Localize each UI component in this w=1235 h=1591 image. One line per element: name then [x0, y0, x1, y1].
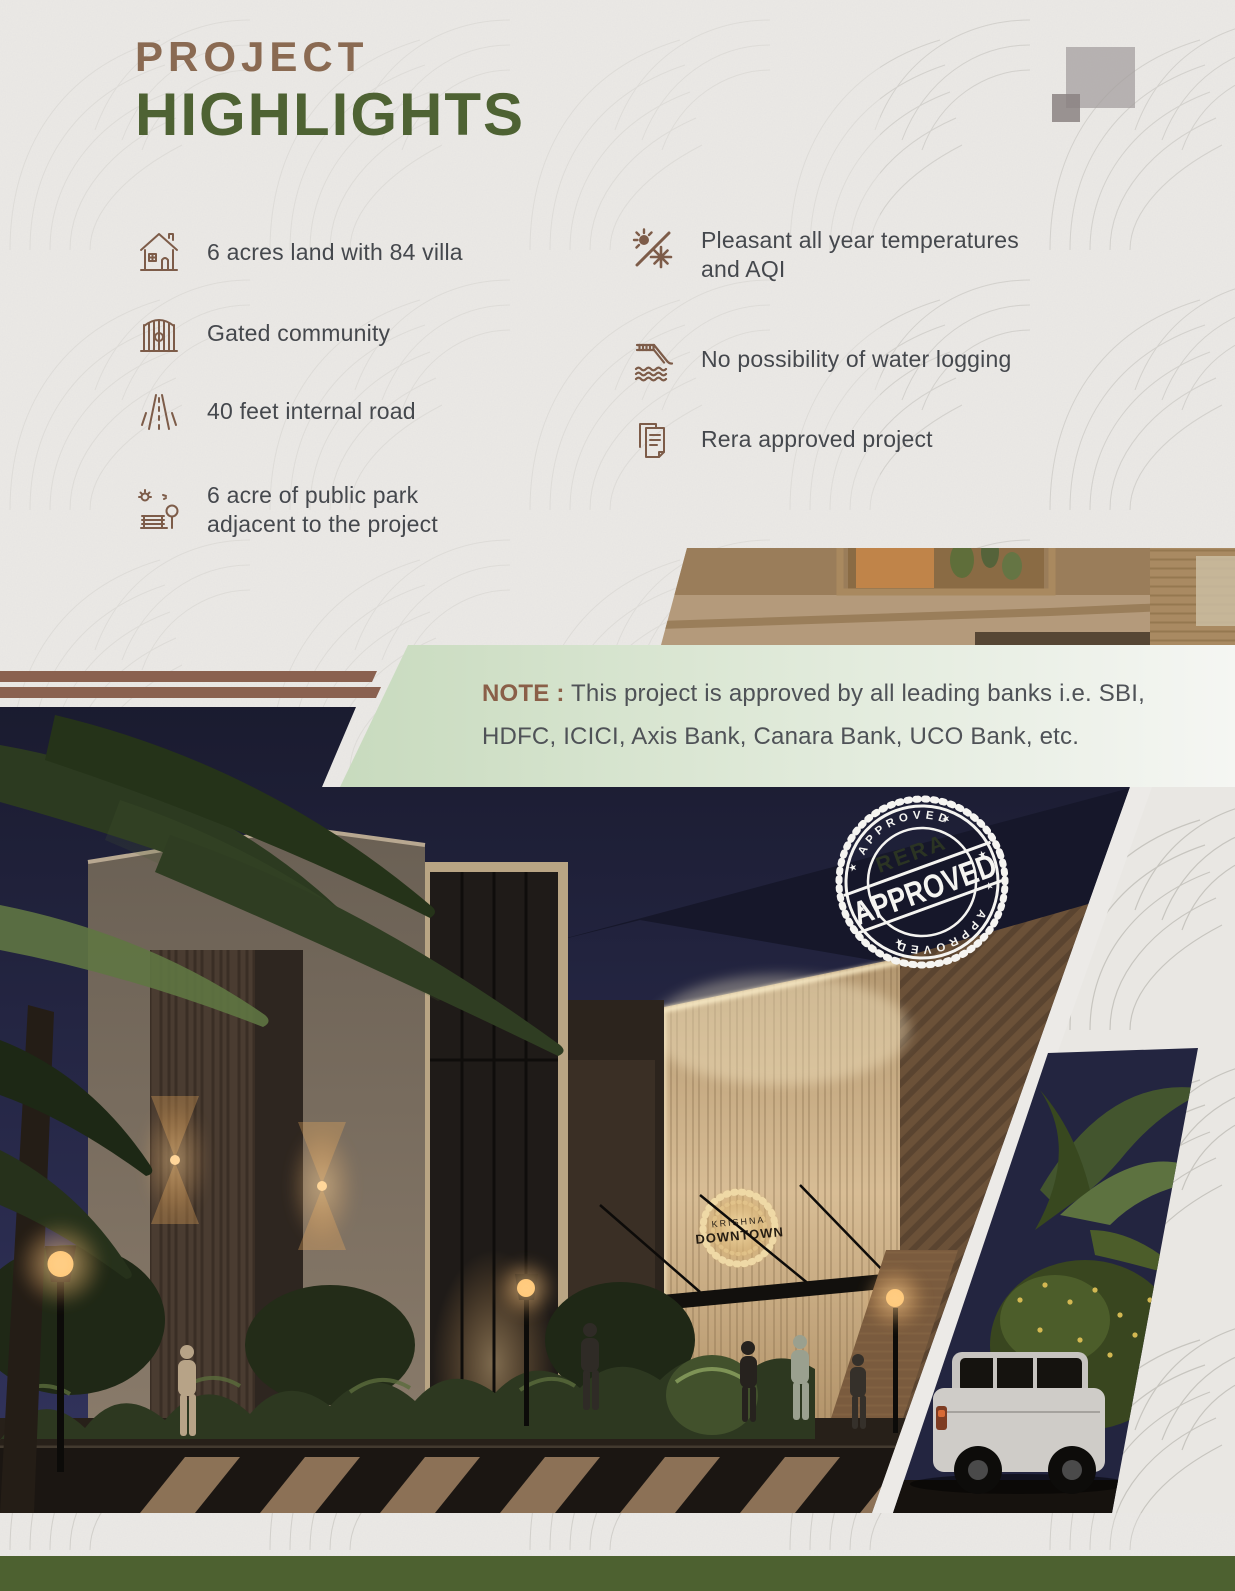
brochure-page: PROJECT HIGHLIGHTS 6 acres land with 84 …	[0, 0, 1235, 1591]
note-label: NOTE :	[482, 680, 565, 707]
footer-bar	[0, 1556, 1235, 1591]
building-photo-top	[650, 536, 1235, 650]
note-line-1: NOTE : This project is approved by all l…	[482, 672, 1235, 715]
note-banner: NOTE : This project is approved by all l…	[330, 645, 1235, 787]
note-text-1: This project is approved by all leading …	[571, 680, 1145, 707]
note-line-2: HDFC, ICICI, Axis Bank, Canara Bank, UCO…	[482, 715, 1235, 758]
photo-collage: KRISHNA DOWNTOWN	[0, 0, 1235, 1591]
